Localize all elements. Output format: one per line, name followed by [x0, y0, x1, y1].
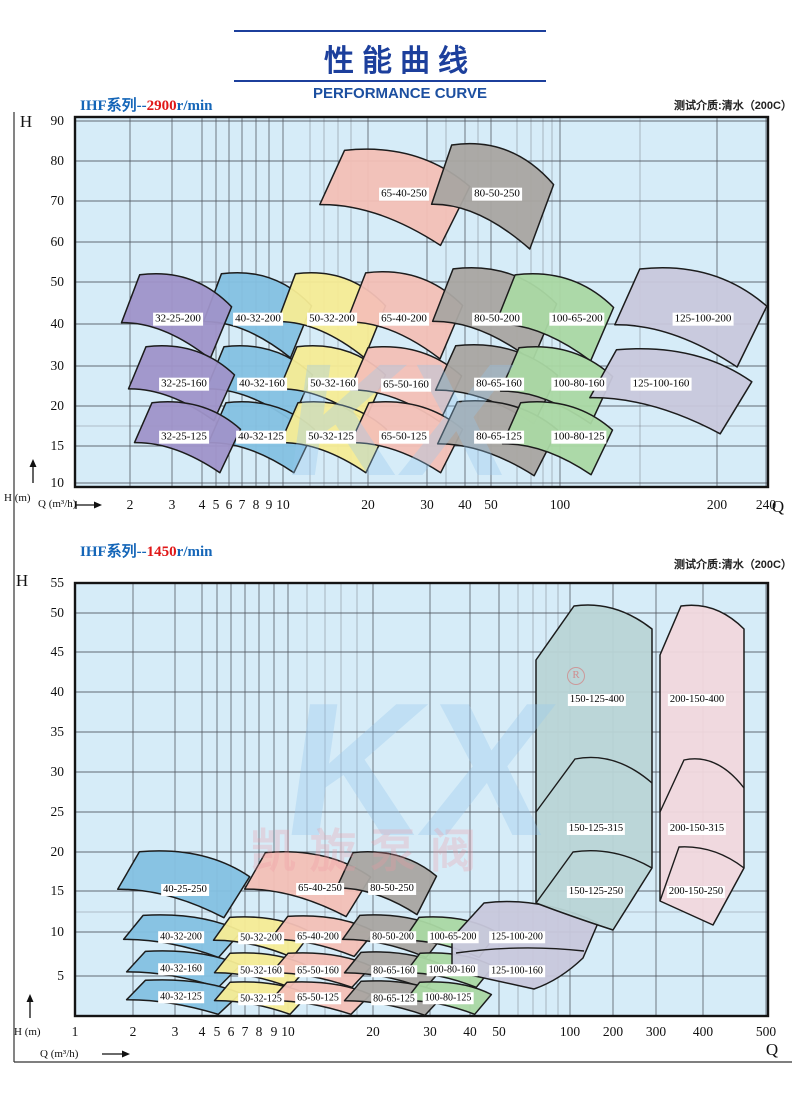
- chart2-q-axis-arrow-icon: [122, 1051, 130, 1058]
- region-label-125-100-200: 125-100-200: [489, 931, 545, 943]
- chart2-x-tick-label-8: 8: [256, 1024, 263, 1040]
- region-label-40-32-125: 40-32-125: [236, 431, 286, 444]
- chart1-x-tick-label-6: 6: [226, 497, 233, 513]
- chart2-y-axis-symbol: H: [16, 571, 28, 591]
- region-label-65-40-200: 65-40-200: [295, 931, 341, 943]
- region-label-150-125-315: 150-125-315: [567, 823, 625, 835]
- chart1-x-tick-label-3: 3: [169, 497, 176, 513]
- chart1-y-tick-label-50: 50: [34, 274, 64, 290]
- chart1-x-tick-label-20: 20: [361, 497, 375, 513]
- region-label-40-32-125: 40-32-125: [158, 991, 204, 1003]
- chart1-x-tick-label-40: 40: [458, 497, 472, 513]
- chart1-y-tick-label-80: 80: [34, 153, 64, 169]
- chart2-y-tick-label-5: 5: [34, 968, 64, 984]
- chart2-x-tick-label-1: 1: [72, 1024, 79, 1040]
- region-label-50-32-160: 50-32-160: [308, 378, 358, 391]
- region-label-80-50-200: 80-50-200: [370, 931, 416, 943]
- region-label-65-50-160: 65-50-160: [381, 379, 431, 392]
- region-label-150-125-400: 150-125-400: [568, 694, 626, 706]
- chart1-y-tick-label-20: 20: [34, 398, 64, 414]
- chart2-y-tick-label-30: 30: [34, 764, 64, 780]
- region-label-80-50-250: 80-50-250: [368, 883, 416, 895]
- region-label-40-32-160: 40-32-160: [158, 963, 204, 975]
- region-label-80-65-125: 80-65-125: [371, 993, 417, 1005]
- region-label-125-100-200: 125-100-200: [673, 313, 734, 326]
- chart2-y-tick-label-35: 35: [34, 724, 64, 740]
- region-label-100-80-160: 100-80-160: [551, 378, 606, 391]
- chart1-y-tick-label-70: 70: [34, 193, 64, 209]
- region-label-32-25-160: 32-25-160: [159, 378, 209, 391]
- chart1-y-tick-label-40: 40: [34, 316, 64, 332]
- chart2-y-tick-label-45: 45: [34, 644, 64, 660]
- region-label-65-40-200: 65-40-200: [379, 313, 429, 326]
- chart2-y-tick-label-40: 40: [34, 684, 64, 700]
- chart2-x-tick-label-500: 500: [756, 1024, 776, 1040]
- region-label-100-80-125: 100-80-125: [551, 431, 606, 444]
- chart1-x-tick-label-200: 200: [707, 497, 727, 513]
- chart2-x-tick-label-400: 400: [693, 1024, 713, 1040]
- chart2-x-tick-label-4: 4: [199, 1024, 206, 1040]
- region-label-200-150-400: 200-150-400: [668, 694, 726, 706]
- region-label-50-32-125: 50-32-125: [238, 993, 284, 1005]
- region-label-150-125-250: 150-125-250: [567, 886, 625, 898]
- chart2-x-tick-label-9: 9: [271, 1024, 278, 1040]
- chart1-y-tick-label-10: 10: [34, 475, 64, 491]
- chart1-x-tick-label-100: 100: [550, 497, 570, 513]
- chart2-x-tick-label-5: 5: [214, 1024, 221, 1040]
- chart2-x-tick-label-20: 20: [366, 1024, 380, 1040]
- chart1-x-tick-label-4: 4: [199, 497, 206, 513]
- region-label-100-80-160: 100-80-160: [427, 964, 478, 976]
- chart1-y-axis-unit: H (m): [4, 492, 31, 504]
- chart1-y-tick-label-60: 60: [34, 234, 64, 250]
- chart1-x-tick-label-5: 5: [213, 497, 220, 513]
- region-label-80-50-200: 80-50-200: [472, 313, 522, 326]
- chart2-x-tick-label-300: 300: [646, 1024, 666, 1040]
- chart2-y-tick-label-25: 25: [34, 804, 64, 820]
- region-label-80-65-160: 80-65-160: [474, 378, 524, 391]
- chart2-x-tick-label-10: 10: [281, 1024, 295, 1040]
- chart2-y-tick-label-20: 20: [34, 844, 64, 860]
- page: 性能曲线 PERFORMANCE CURVE IHF系列--2900r/min …: [0, 0, 800, 1098]
- region-label-50-32-200: 50-32-200: [307, 313, 357, 326]
- chart2-x-tick-label-6: 6: [228, 1024, 235, 1040]
- chart1-y-tick-label-30: 30: [34, 358, 64, 374]
- chart1-x-tick-label-8: 8: [253, 497, 260, 513]
- chart2-y-tick-label-55: 55: [34, 575, 64, 591]
- region-label-40-32-200: 40-32-200: [158, 931, 204, 943]
- chart2-x-axis-unit: Q (m³/h): [40, 1048, 78, 1060]
- region-label-125-100-160: 125-100-160: [631, 378, 692, 391]
- region-label-65-50-160: 65-50-160: [295, 965, 341, 977]
- chart2-region-150-125-400: [536, 605, 652, 930]
- chart2-y-axis-unit: H (m): [14, 1026, 41, 1038]
- chart1-x-tick-label-50: 50: [484, 497, 498, 513]
- chart2-y-tick-label-10: 10: [34, 924, 64, 940]
- region-label-80-50-250: 80-50-250: [472, 188, 522, 201]
- region-label-200-150-315: 200-150-315: [668, 823, 726, 835]
- region-label-32-25-200: 32-25-200: [153, 313, 203, 326]
- chart1-y-axis-symbol: H: [20, 112, 32, 132]
- chart2-y-tick-label-50: 50: [34, 605, 64, 621]
- region-label-50-32-125: 50-32-125: [306, 431, 356, 444]
- chart1-h-axis-arrow-icon: [30, 459, 37, 467]
- region-label-125-100-160: 125-100-160: [489, 965, 545, 977]
- region-label-100-65-200: 100-65-200: [428, 931, 479, 943]
- chart2-h-axis-arrow-icon: [27, 994, 34, 1002]
- region-label-40-32-200: 40-32-200: [233, 313, 283, 326]
- chart1-x-axis-unit: Q (m³/h): [38, 498, 76, 510]
- region-label-65-40-250: 65-40-250: [296, 883, 344, 895]
- region-label-65-40-250: 65-40-250: [379, 188, 429, 201]
- region-label-80-65-125: 80-65-125: [474, 431, 524, 444]
- region-label-80-65-160: 80-65-160: [371, 965, 417, 977]
- chart2-y-tick-label-15: 15: [34, 883, 64, 899]
- chart2-region-200-150-400: [660, 605, 744, 925]
- chart2-x-tick-label-2: 2: [130, 1024, 137, 1040]
- chart1-x-tick-label-7: 7: [239, 497, 246, 513]
- chart2-x-tick-label-100: 100: [560, 1024, 580, 1040]
- chart1-y-tick-label-90: 90: [34, 113, 64, 129]
- chart1-q-axis-arrow-icon: [94, 502, 102, 509]
- chart1-y-tick-label-15: 15: [34, 438, 64, 454]
- chart2-x-tick-label-3: 3: [172, 1024, 179, 1040]
- region-label-200-150-250: 200-150-250: [667, 886, 725, 898]
- region-label-65-50-125: 65-50-125: [379, 431, 429, 444]
- region-label-100-65-200: 100-65-200: [549, 313, 604, 326]
- chart1-x-tick-label-2: 2: [127, 497, 134, 513]
- chart1-x-tick-label-30: 30: [420, 497, 434, 513]
- region-label-50-32-200: 50-32-200: [238, 932, 284, 944]
- region-label-40-25-250: 40-25-250: [161, 884, 209, 896]
- chart1-x-axis-symbol: Q: [772, 497, 784, 517]
- chart2-x-tick-label-7: 7: [242, 1024, 249, 1040]
- region-label-100-80-125: 100-80-125: [423, 992, 474, 1004]
- chart2-x-axis-symbol: Q: [766, 1040, 778, 1060]
- region-label-40-32-160: 40-32-160: [237, 378, 287, 391]
- chart1-x-tick-label-10: 10: [276, 497, 290, 513]
- region-label-50-32-160: 50-32-160: [238, 965, 284, 977]
- chart1-x-tick-label-9: 9: [266, 497, 273, 513]
- chart2-x-tick-label-50: 50: [492, 1024, 506, 1040]
- chart2-x-tick-label-200: 200: [603, 1024, 623, 1040]
- region-label-65-50-125: 65-50-125: [295, 992, 341, 1004]
- chart2-x-tick-label-40: 40: [463, 1024, 477, 1040]
- chart2-x-tick-label-30: 30: [423, 1024, 437, 1040]
- region-label-32-25-125: 32-25-125: [159, 431, 209, 444]
